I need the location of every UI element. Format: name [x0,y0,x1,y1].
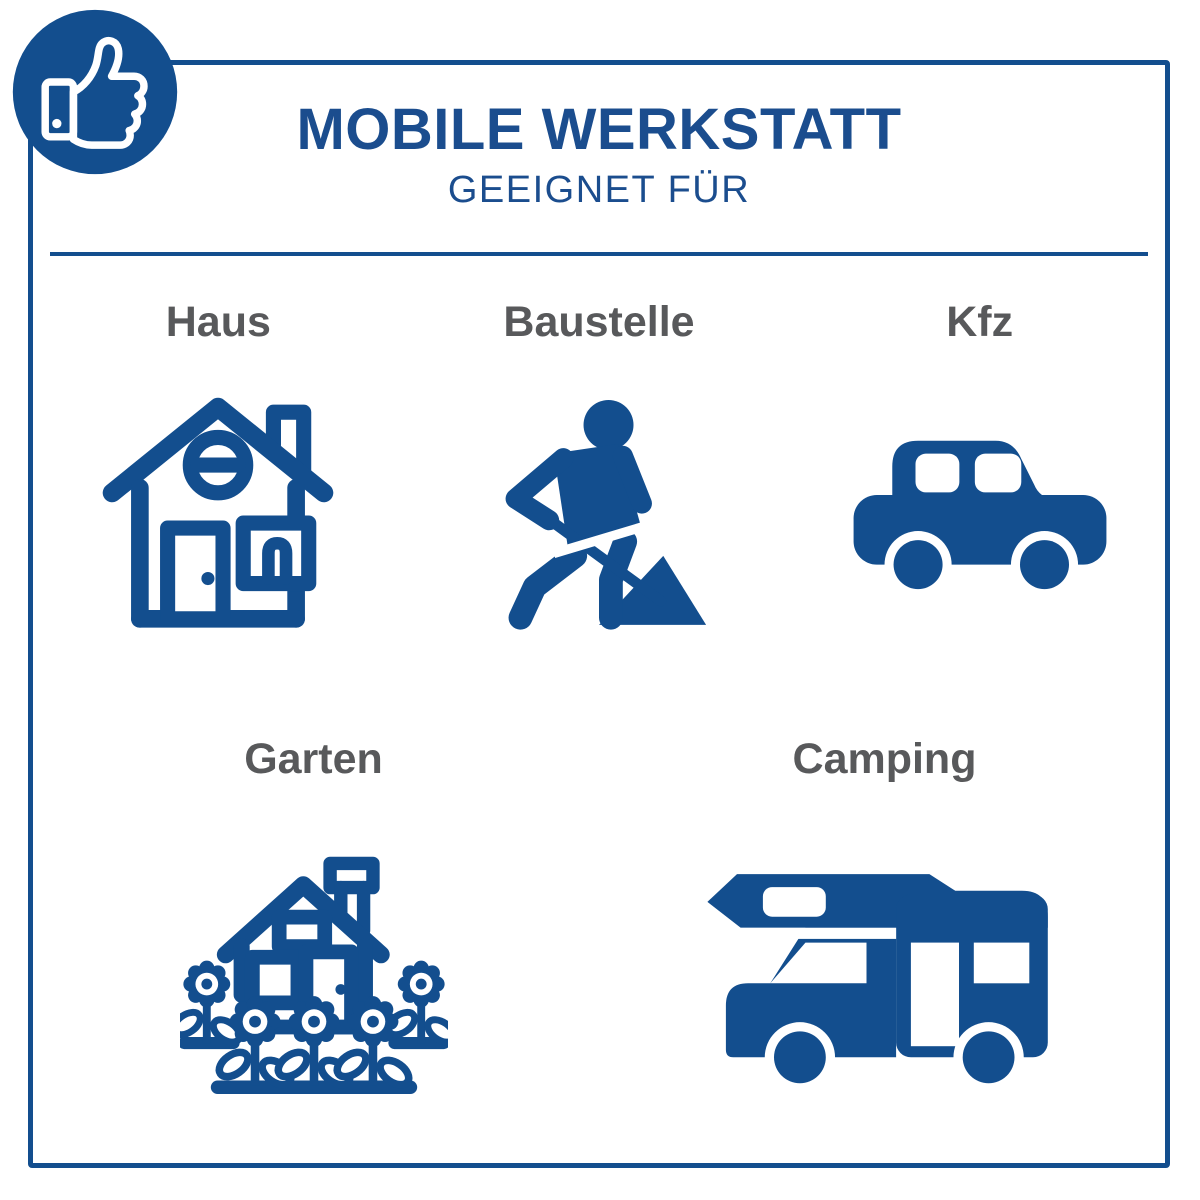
page-subtitle: GEEIGNET FÜR [28,166,1170,214]
item-camping: Camping [599,734,1170,1104]
item-baustelle: Baustelle [409,297,790,641]
row-1: Haus [28,297,1170,641]
car-icon [851,433,1109,593]
item-iconbox [480,385,718,641]
item-label: Baustelle [503,297,694,347]
row-2: Garten [28,734,1170,1104]
infographic: MOBILE WERKSTATT GEEIGNET FÜR Haus [0,0,1200,1200]
header: MOBILE WERKSTATT GEEIGNET FÜR [28,98,1170,214]
house-icon [92,387,344,639]
item-kfz: Kfz [789,297,1170,641]
item-iconbox [92,385,344,641]
item-label: Camping [793,734,977,784]
item-garten: Garten [28,734,599,1104]
page-title: MOBILE WERKSTATT [28,98,1170,162]
construction-worker-icon [480,394,718,632]
item-label: Kfz [946,297,1013,347]
item-iconbox [851,385,1109,641]
item-iconbox [180,832,448,1104]
item-haus: Haus [28,297,409,641]
item-label: Haus [166,297,271,347]
item-iconbox [700,832,1070,1104]
garden-house-flowers-icon [180,834,448,1102]
thumbs-up-icon [12,9,178,175]
header-divider [50,252,1148,256]
item-label: Garten [244,734,383,784]
thumbs-up-badge [12,9,178,175]
camper-van-icon [700,850,1070,1087]
